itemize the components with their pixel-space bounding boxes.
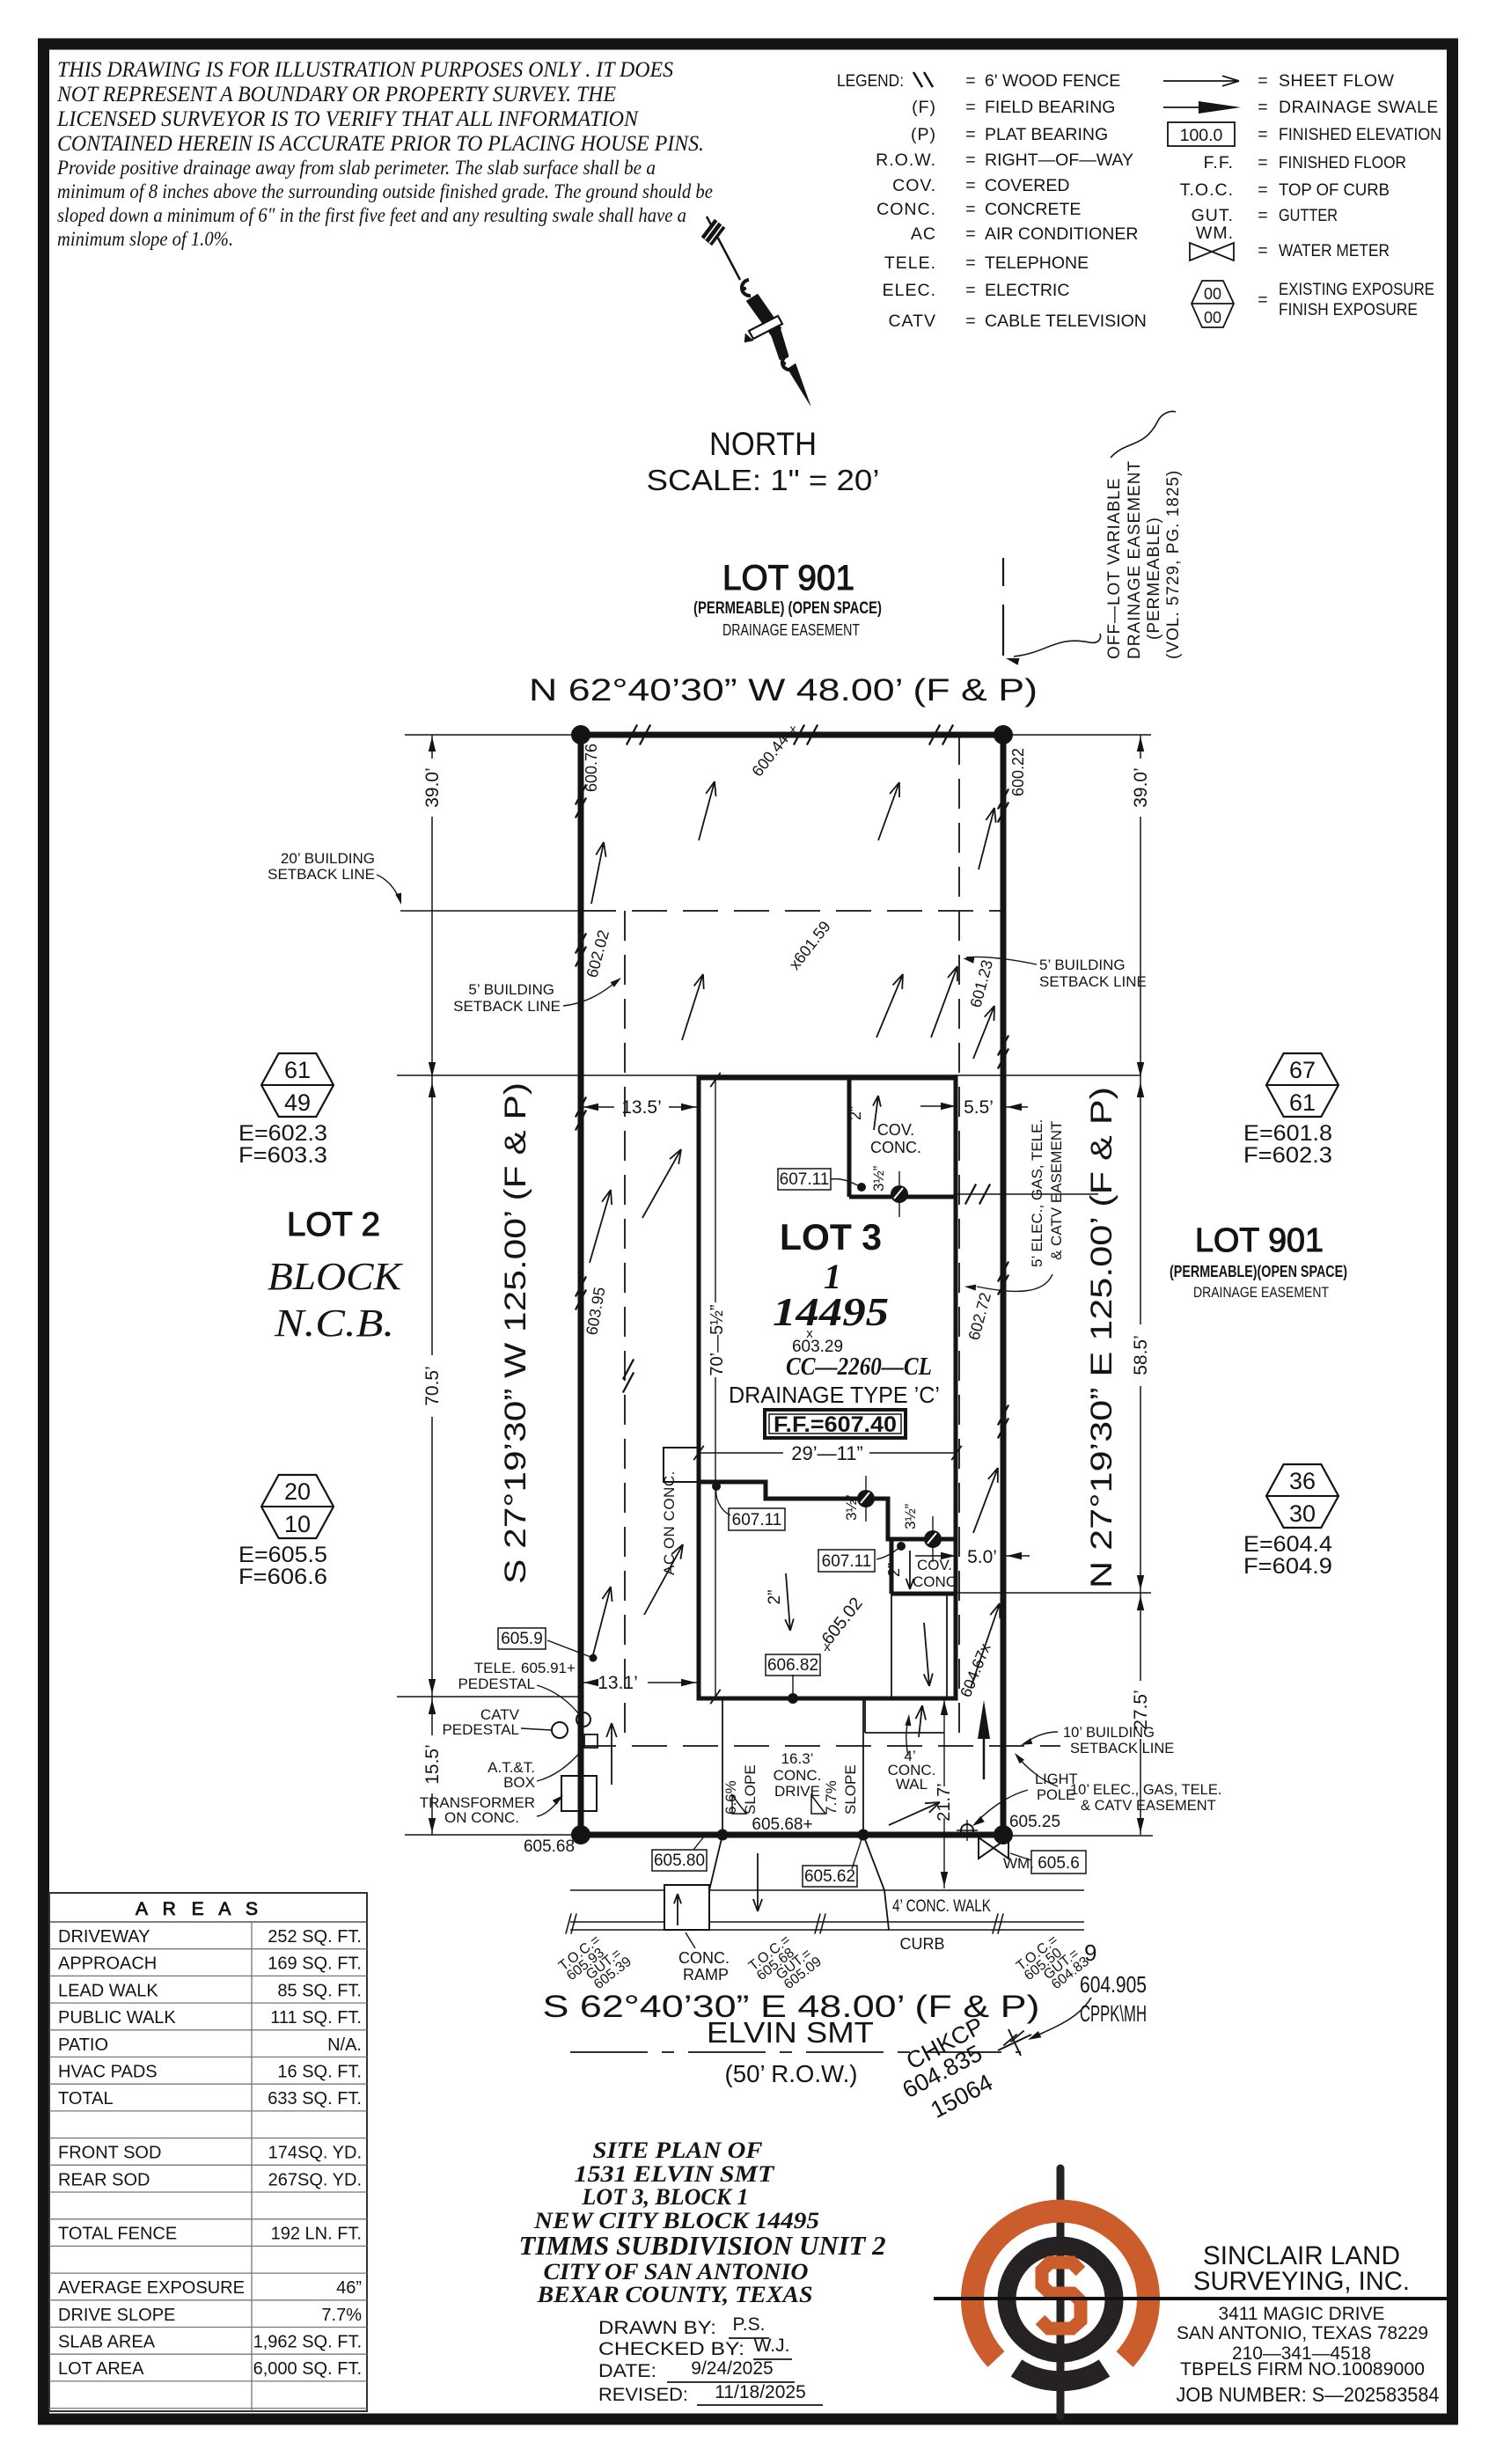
svg-text:LOT 901: LOT 901 — [722, 559, 854, 598]
svg-text:61: 61 — [284, 1057, 311, 1083]
svg-text:TELEPHONE: TELEPHONE — [985, 253, 1089, 273]
svg-text:600.22: 600.22 — [1009, 748, 1027, 796]
svg-text:REAR SOD: REAR SOD — [58, 2170, 150, 2189]
svg-text:E=601.8: E=601.8 — [1243, 1121, 1332, 1146]
svg-text:PEDESTAL: PEDESTAL — [442, 1721, 519, 1738]
svg-text:PATIO: PATIO — [58, 2035, 108, 2055]
svg-text:N.C.B.: N.C.B. — [274, 1302, 394, 1345]
svg-text:BLOCK: BLOCK — [268, 1255, 404, 1298]
svg-text:=: = — [1258, 71, 1267, 91]
svg-text:& CATV EASEMENT: & CATV EASEMENT — [1081, 1798, 1216, 1814]
svg-text:SETBACK LINE: SETBACK LINE — [453, 998, 561, 1015]
svg-text:CPPK\MH: CPPK\MH — [1080, 2000, 1147, 2027]
svg-text:29’—11”: 29’—11” — [791, 1442, 863, 1464]
svg-text:CONC.: CONC. — [774, 1767, 822, 1784]
svg-text:PEDESTAL: PEDESTAL — [458, 1676, 535, 1692]
svg-text:605.80: 605.80 — [654, 1852, 705, 1870]
svg-text:605.68+: 605.68+ — [752, 1815, 812, 1834]
svg-text:=: = — [965, 224, 975, 244]
svg-text:(50’ R.O.W.): (50’ R.O.W.) — [725, 2060, 858, 2087]
svg-text:607.11: 607.11 — [780, 1170, 830, 1189]
svg-text:600.76: 600.76 — [583, 744, 600, 792]
svg-text:=: = — [965, 150, 975, 170]
svg-text:=: = — [965, 71, 975, 91]
svg-text:14495: 14495 — [773, 1289, 889, 1334]
svg-text:BEXAR COUNTY, TEXAS: BEXAR COUNTY, TEXAS — [536, 2282, 812, 2307]
svg-text:30: 30 — [1289, 1500, 1316, 1527]
svg-text:CITY OF SAN ANTONIO: CITY OF SAN ANTONIO — [544, 2259, 809, 2284]
svg-text:605.91+: 605.91+ — [521, 1660, 576, 1676]
svg-text:=: = — [1258, 241, 1267, 260]
svg-text:=: = — [965, 176, 975, 195]
svg-text:2”: 2” — [766, 1590, 784, 1605]
svg-text:COV.: COV. — [877, 1121, 914, 1139]
svg-text:SURVEYING, INC.: SURVEYING, INC. — [1193, 2267, 1410, 2296]
svg-text:SETBACK LINE: SETBACK LINE — [1070, 1741, 1174, 1756]
svg-text:4’ CONC. WALK: 4’ CONC. WALK — [892, 1897, 991, 1916]
svg-text:F.F.: F.F. — [1204, 153, 1234, 172]
svg-text:LOT AREA: LOT AREA — [58, 2359, 144, 2379]
svg-text:TELE.: TELE. — [474, 1660, 516, 1676]
svg-text:633 SQ. FT.: 633 SQ. FT. — [268, 2089, 362, 2108]
svg-text:DRIVEWAY: DRIVEWAY — [58, 1927, 150, 1947]
svg-text:W.J.: W.J. — [754, 2336, 790, 2356]
svg-text:20: 20 — [284, 1478, 311, 1505]
svg-text:A R E A S: A R E A S — [136, 1899, 263, 1919]
svg-text:ON CONC.: ON CONC. — [444, 1809, 519, 1826]
svg-text:THIS DRAWING IS FOR ILLUSTRATI: THIS DRAWING IS FOR ILLUSTRATION PURPOSE… — [57, 56, 673, 82]
svg-text:10’ BUILDING: 10’ BUILDING — [1063, 1725, 1155, 1741]
svg-text:LOT 901: LOT 901 — [1195, 1222, 1324, 1259]
svg-text:604.905: 604.905 — [1080, 1971, 1147, 1998]
svg-text:RAMP: RAMP — [683, 1966, 729, 1984]
svg-text:39.0’: 39.0’ — [422, 767, 443, 808]
svg-text:1,962 SQ. FT.: 1,962 SQ. FT. — [253, 2333, 362, 2352]
svg-text:20’ BUILDING: 20’ BUILDING — [281, 850, 375, 867]
svg-text:3½”: 3½” — [843, 1494, 860, 1521]
svg-text:DRAINAGE EASEMENT: DRAINAGE EASEMENT — [1126, 460, 1144, 659]
svg-text:16 SQ. FT.: 16 SQ. FT. — [277, 2063, 362, 2082]
svg-text:=: = — [965, 312, 975, 331]
svg-text:ELEC.: ELEC. — [883, 281, 936, 300]
svg-text:605.25: 605.25 — [1009, 1813, 1060, 1831]
svg-text:(F): (F) — [912, 98, 936, 117]
svg-text:(PERMEABLE)(OPEN SPACE): (PERMEABLE)(OPEN SPACE) — [1170, 1263, 1347, 1280]
svg-text:LOT 3: LOT 3 — [780, 1216, 882, 1258]
svg-text:FINISH EXPOSURE: FINISH EXPOSURE — [1279, 300, 1418, 319]
svg-text:606.82: 606.82 — [767, 1656, 818, 1675]
svg-text:TBPELS FIRM NO.10089000: TBPELS FIRM NO.10089000 — [1180, 2359, 1425, 2380]
svg-text:SETBACK LINE: SETBACK LINE — [1039, 973, 1147, 990]
svg-text:10: 10 — [284, 1511, 311, 1537]
svg-text:=: = — [1258, 180, 1267, 200]
svg-text:P.S.: P.S. — [733, 2314, 766, 2335]
svg-text:WM.: WM. — [1003, 1855, 1034, 1872]
svg-text:CURB: CURB — [899, 1935, 944, 1953]
svg-text:5.5’: 5.5’ — [964, 1097, 994, 1118]
svg-text:FINISHED ELEVATION: FINISHED ELEVATION — [1279, 125, 1441, 144]
svg-text:TOTAL FENCE: TOTAL FENCE — [58, 2225, 177, 2244]
svg-text:AIR CONDITIONER: AIR CONDITIONER — [985, 224, 1138, 244]
svg-text:LOT 2: LOT 2 — [287, 1206, 380, 1243]
svg-text:PUBLIC WALK: PUBLIC WALK — [58, 2008, 176, 2028]
svg-text:DRAWN BY:: DRAWN BY: — [598, 2318, 716, 2338]
svg-text:DATE:: DATE: — [598, 2361, 656, 2381]
svg-text:=: = — [1258, 98, 1267, 117]
svg-text:1531 ELVIN SMT: 1531 ELVIN SMT — [575, 2161, 775, 2187]
svg-text:607.11: 607.11 — [732, 1511, 782, 1529]
svg-text:WAL: WAL — [896, 1776, 928, 1793]
svg-text:46”: 46” — [336, 2278, 362, 2298]
svg-text:100.0: 100.0 — [1180, 126, 1223, 145]
svg-text:(VOL. 5729, PG. 1825): (VOL. 5729, PG. 1825) — [1164, 470, 1183, 659]
svg-text:2”: 2” — [885, 1563, 903, 1577]
svg-text:AVERAGE EXPOSURE: AVERAGE EXPOSURE — [58, 2278, 245, 2298]
svg-text:CONTAINED HEREIN IS ACCURATE P: CONTAINED HEREIN IS ACCURATE PRIOR TO PL… — [57, 130, 704, 156]
svg-text:T.O.C.: T.O.C. — [1180, 180, 1234, 200]
svg-text:16.3’: 16.3’ — [781, 1750, 814, 1767]
svg-text:RIGHT—OF—WAY: RIGHT—OF—WAY — [985, 150, 1133, 170]
svg-text:COV.: COV. — [892, 176, 936, 195]
svg-text:=: = — [965, 281, 975, 300]
svg-text:E=605.5: E=605.5 — [238, 1543, 327, 1567]
svg-text:F=604.9: F=604.9 — [1243, 1554, 1332, 1579]
svg-text:(PERMEABLE) (OPEN SPACE): (PERMEABLE) (OPEN SPACE) — [693, 599, 882, 618]
svg-text:7.7%: 7.7% — [823, 1780, 840, 1815]
svg-text:605.62: 605.62 — [804, 1867, 855, 1886]
svg-text:CABLE TELEVISION: CABLE TELEVISION — [985, 312, 1147, 331]
svg-text:x: x — [790, 722, 796, 736]
svg-text:13.5’: 13.5’ — [621, 1097, 662, 1118]
svg-text:=: = — [1258, 125, 1267, 144]
svg-text:R.O.W.: R.O.W. — [876, 150, 936, 170]
svg-text:TIMMS SUBDIVISION UNIT 2: TIMMS SUBDIVISION UNIT 2 — [519, 2230, 886, 2261]
svg-text:AC: AC — [911, 224, 936, 244]
svg-text:3411 MAGIC DRIVE: 3411 MAGIC DRIVE — [1219, 2304, 1385, 2324]
svg-text:TELE.: TELE. — [884, 253, 936, 273]
svg-text:F=602.3: F=602.3 — [1243, 1143, 1332, 1168]
svg-text:BOX: BOX — [503, 1774, 535, 1791]
svg-text:N/A.: N/A. — [327, 2035, 362, 2055]
svg-text:N 62°40’30” W 48.00’ (F &: N 62°40’30” W 48.00’ (F & P) — [529, 673, 1038, 708]
svg-text:SCALE: 1" = 20’: SCALE: 1" = 20’ — [647, 464, 880, 496]
svg-text:SETBACK LINE: SETBACK LINE — [268, 866, 375, 883]
svg-text:WM.: WM. — [1196, 224, 1234, 243]
svg-text:Provide positive drainage away: Provide positive drainage away from slab… — [56, 157, 656, 179]
svg-text:(PERMEABLE): (PERMEABLE) — [1145, 517, 1163, 640]
svg-text:TOP OF CURB: TOP OF CURB — [1279, 180, 1390, 200]
svg-text:E=602.3: E=602.3 — [238, 1121, 327, 1146]
svg-text:WATER METER: WATER METER — [1279, 241, 1390, 260]
svg-text:169 SQ. FT.: 169 SQ. FT. — [268, 1954, 362, 1974]
svg-text:NOT REPRESENT A BOUNDARY OR PR: NOT REPRESENT A BOUNDARY OR PROPERTY SUR… — [56, 81, 616, 106]
svg-text:F=606.6: F=606.6 — [238, 1565, 327, 1589]
svg-text:00: 00 — [1204, 285, 1221, 303]
svg-text:E=604.4: E=604.4 — [1243, 1532, 1332, 1557]
svg-text:DRAINAGE SWALE: DRAINAGE SWALE — [1279, 98, 1439, 117]
svg-text:=: = — [965, 98, 975, 117]
svg-text:6.6%: 6.6% — [722, 1780, 739, 1815]
svg-text:JOB NUMBER: S—202583584: JOB NUMBER: S—202583584 — [1177, 2383, 1440, 2406]
svg-text:00: 00 — [1204, 309, 1221, 326]
svg-text:LOT 3, BLOCK 1: LOT 3, BLOCK 1 — [582, 2184, 749, 2210]
svg-text:=: = — [1258, 153, 1267, 172]
svg-text:CONC.: CONC. — [876, 200, 936, 219]
svg-text:607.11: 607.11 — [822, 1552, 872, 1571]
svg-text:S 27°19’30” W 125.00’ (F: S 27°19’30” W 125.00’ (F & P) — [499, 1082, 532, 1584]
svg-text:SITE PLAN OF: SITE PLAN OF — [593, 2138, 763, 2163]
svg-text:=: = — [965, 125, 975, 144]
svg-text:3½”: 3½” — [902, 1503, 919, 1529]
svg-text:5’ ELEC., GAS, TELE.: 5’ ELEC., GAS, TELE. — [1029, 1119, 1045, 1267]
svg-text:=: = — [1258, 206, 1267, 225]
svg-text:605.9: 605.9 — [501, 1630, 543, 1648]
svg-text:85 SQ. FT.: 85 SQ. FT. — [277, 1981, 362, 2000]
svg-text:LEGEND:: LEGEND: — [837, 71, 904, 91]
svg-text:CONCRETE: CONCRETE — [985, 200, 1081, 219]
svg-text:9: 9 — [1084, 1940, 1096, 1966]
svg-text:N 27°19’30” E 125.00’ (F: N 27°19’30” E 125.00’ (F & P) — [1085, 1087, 1118, 1588]
svg-text:3½”: 3½” — [870, 1165, 887, 1192]
svg-text:70’—5½”: 70’—5½” — [708, 1304, 727, 1375]
svg-text:61: 61 — [1289, 1089, 1316, 1116]
svg-text:10’ ELEC., GAS, TELE.: 10’ ELEC., GAS, TELE. — [1070, 1782, 1221, 1798]
svg-text:605.68: 605.68 — [524, 1837, 575, 1856]
svg-text:minimum of 8 inches above the: minimum of 8 inches above the surroundin… — [57, 180, 713, 202]
svg-text:=: = — [965, 200, 975, 219]
svg-text:FRONT SOD: FRONT SOD — [58, 2144, 161, 2163]
svg-text:111 SQ. FT.: 111 SQ. FT. — [270, 2008, 362, 2028]
svg-text:APPROACH: APPROACH — [58, 1954, 157, 1974]
svg-text:FINISHED FLOOR: FINISHED FLOOR — [1279, 153, 1406, 172]
svg-text:FIELD BEARING: FIELD BEARING — [985, 98, 1115, 117]
svg-text:DRAINAGE EASEMENT: DRAINAGE EASEMENT — [722, 621, 860, 639]
svg-text:9/24/2025: 9/24/2025 — [691, 2358, 773, 2379]
svg-text:2”: 2” — [847, 1106, 864, 1120]
svg-text:GUTTER: GUTTER — [1279, 206, 1338, 225]
svg-text:OFF—LOT VARIABLE: OFF—LOT VARIABLE — [1105, 478, 1124, 659]
svg-text:6,000 SQ. FT.: 6,000 SQ. FT. — [253, 2359, 362, 2379]
svg-text:DRIVE SLOPE: DRIVE SLOPE — [58, 2306, 175, 2325]
svg-text:49: 49 — [284, 1089, 311, 1116]
svg-text:HVAC PADS: HVAC PADS — [58, 2063, 158, 2082]
svg-text:CONC: CONC — [913, 1573, 957, 1590]
svg-text:SHEET FLOW: SHEET FLOW — [1279, 71, 1395, 91]
svg-text:COV.: COV. — [917, 1557, 952, 1573]
svg-text:& CATV EASEMENT: & CATV EASEMENT — [1048, 1121, 1065, 1260]
svg-text:SAN ANTONIO, TEXAS 78229: SAN ANTONIO, TEXAS 78229 — [1177, 2323, 1428, 2343]
svg-text:13.1’: 13.1’ — [598, 1673, 638, 1693]
svg-text:DRAINAGE EASEMENT: DRAINAGE EASEMENT — [1193, 1284, 1329, 1301]
svg-text:ELECTRIC: ELECTRIC — [985, 281, 1069, 300]
svg-text:605.6: 605.6 — [1038, 1854, 1080, 1873]
svg-text:CC—2260—CL: CC—2260—CL — [786, 1353, 932, 1381]
svg-text:70.5’: 70.5’ — [422, 1366, 443, 1406]
svg-text:COVERED: COVERED — [985, 176, 1069, 195]
svg-text:sloped down a minimum of 6" in: sloped down a minimum of 6" in the first… — [57, 204, 686, 226]
svg-text:(P): (P) — [911, 125, 936, 144]
svg-text:=: = — [965, 253, 975, 273]
svg-text:27.5’: 27.5’ — [1131, 1690, 1151, 1730]
svg-text:F=603.3: F=603.3 — [238, 1143, 327, 1168]
svg-text:192 LN. FT.: 192 LN. FT. — [271, 2225, 362, 2244]
svg-text:EXISTING EXPOSURE: EXISTING EXPOSURE — [1279, 280, 1434, 299]
svg-text:LICENSED SURVEYOR IS TO VERIFY: LICENSED SURVEYOR IS TO VERIFY THAT ALL … — [56, 106, 640, 131]
svg-text:F.F.=607.40: F.F.=607.40 — [774, 1412, 897, 1437]
svg-text:36: 36 — [1289, 1468, 1316, 1494]
svg-text:NORTH: NORTH — [709, 426, 817, 462]
svg-text:minimum slope of 1.0%.: minimum slope of 1.0%. — [57, 228, 233, 250]
svg-text:TOTAL: TOTAL — [58, 2089, 114, 2108]
svg-text:267SQ. YD.: 267SQ. YD. — [268, 2170, 362, 2189]
svg-text:ELVIN SMT: ELVIN SMT — [707, 2016, 874, 2049]
svg-text:LEAD WALK: LEAD WALK — [58, 1981, 158, 2000]
svg-text:67: 67 — [1289, 1057, 1316, 1083]
svg-text:GUT.: GUT. — [1192, 206, 1234, 225]
svg-text:11/18/2025: 11/18/2025 — [715, 2382, 806, 2402]
svg-text:5’ BUILDING: 5’ BUILDING — [1039, 957, 1126, 973]
svg-text:SLOPE: SLOPE — [742, 1764, 759, 1815]
svg-text:REVISED:: REVISED: — [598, 2385, 688, 2405]
svg-text:SLAB AREA: SLAB AREA — [58, 2333, 156, 2352]
svg-text:5’ BUILDING: 5’ BUILDING — [468, 981, 554, 998]
svg-text:SLOPE: SLOPE — [842, 1764, 859, 1815]
svg-text:252 SQ. FT.: 252 SQ. FT. — [268, 1927, 362, 1947]
svg-text:5.0’: 5.0’ — [967, 1547, 997, 1567]
svg-text:PLAT BEARING: PLAT BEARING — [985, 125, 1108, 144]
svg-text:=: = — [1258, 290, 1267, 310]
svg-text:CHECKED BY:: CHECKED BY: — [598, 2339, 744, 2359]
svg-text:58.5’: 58.5’ — [1131, 1335, 1151, 1375]
svg-text:CONC.: CONC. — [870, 1139, 921, 1156]
svg-text:7.7%: 7.7% — [321, 2306, 362, 2325]
svg-text:CONC.: CONC. — [678, 1949, 730, 1967]
svg-text:DRAINAGE TYPE ’C’: DRAINAGE TYPE ’C’ — [729, 1382, 940, 1408]
svg-text:39.0’: 39.0’ — [1131, 767, 1151, 808]
svg-text:15.5’: 15.5’ — [422, 1744, 443, 1785]
svg-text:6' WOOD FENCE: 6' WOOD FENCE — [985, 71, 1120, 91]
svg-text:174SQ. YD.: 174SQ. YD. — [268, 2144, 362, 2163]
svg-text:CATV: CATV — [888, 312, 936, 331]
